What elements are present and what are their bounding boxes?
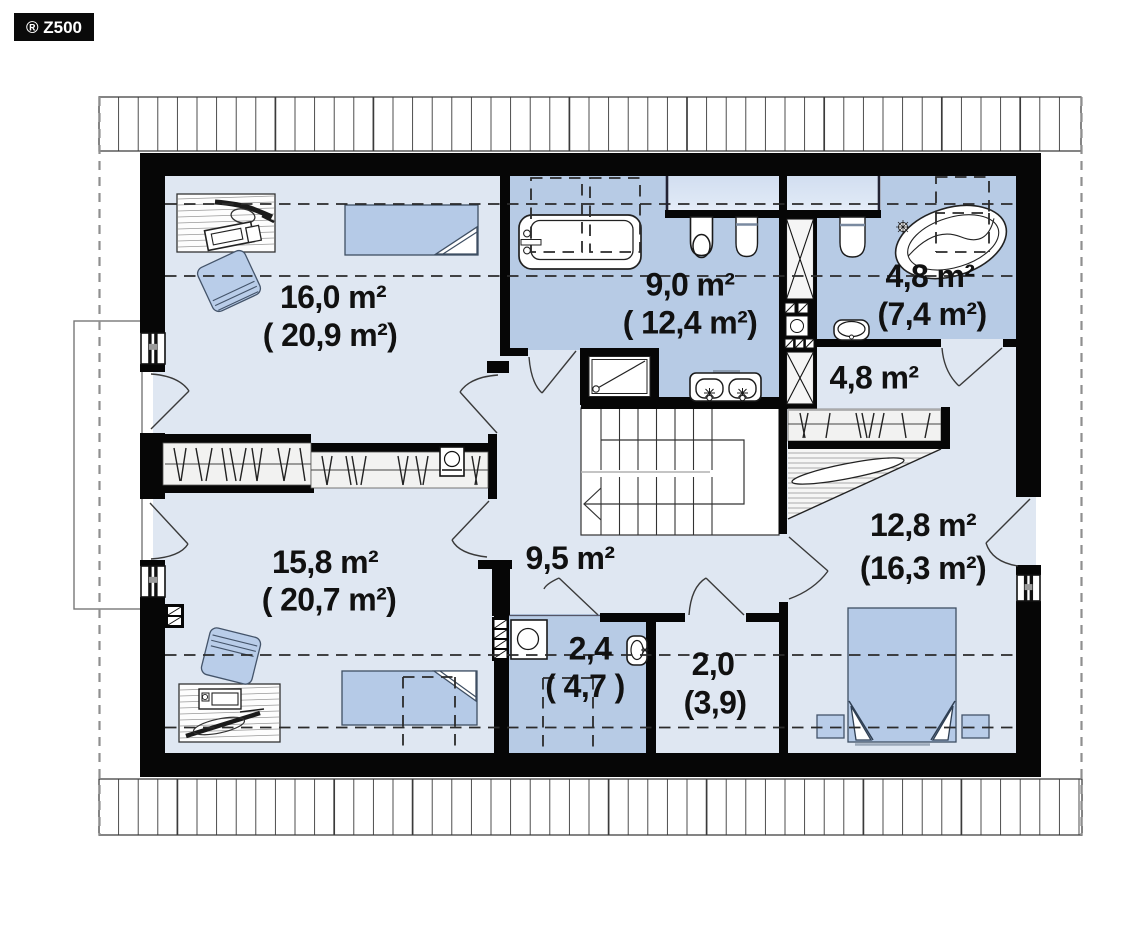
svg-text:12,8 m²: 12,8 m² (870, 507, 976, 543)
svg-text:(3,9): (3,9) (684, 685, 747, 721)
svg-text:(7,4 m²): (7,4 m²) (878, 296, 987, 332)
svg-text:15,8 m²: 15,8 m² (272, 544, 378, 580)
svg-text:2,4: 2,4 (569, 631, 612, 667)
svg-text:16,0 m²: 16,0 m² (280, 279, 386, 315)
svg-text:( 12,4 m²): ( 12,4 m²) (623, 305, 758, 341)
svg-text:4,8 m²: 4,8 m² (830, 360, 919, 396)
svg-text:( 20,9 m²): ( 20,9 m²) (263, 317, 398, 353)
svg-text:( 20,7 m²): ( 20,7 m²) (262, 582, 397, 618)
svg-text:(16,3 m²): (16,3 m²) (860, 550, 986, 586)
svg-text:( 4,7 ): ( 4,7 ) (545, 668, 624, 704)
svg-text:9,5 m²: 9,5 m² (526, 540, 615, 576)
svg-text:9,0 m²: 9,0 m² (646, 267, 735, 303)
svg-text:4,8 m²: 4,8 m² (886, 258, 975, 294)
svg-text:2,0: 2,0 (692, 646, 735, 682)
svg-text:® Z500: ® Z500 (26, 18, 82, 37)
